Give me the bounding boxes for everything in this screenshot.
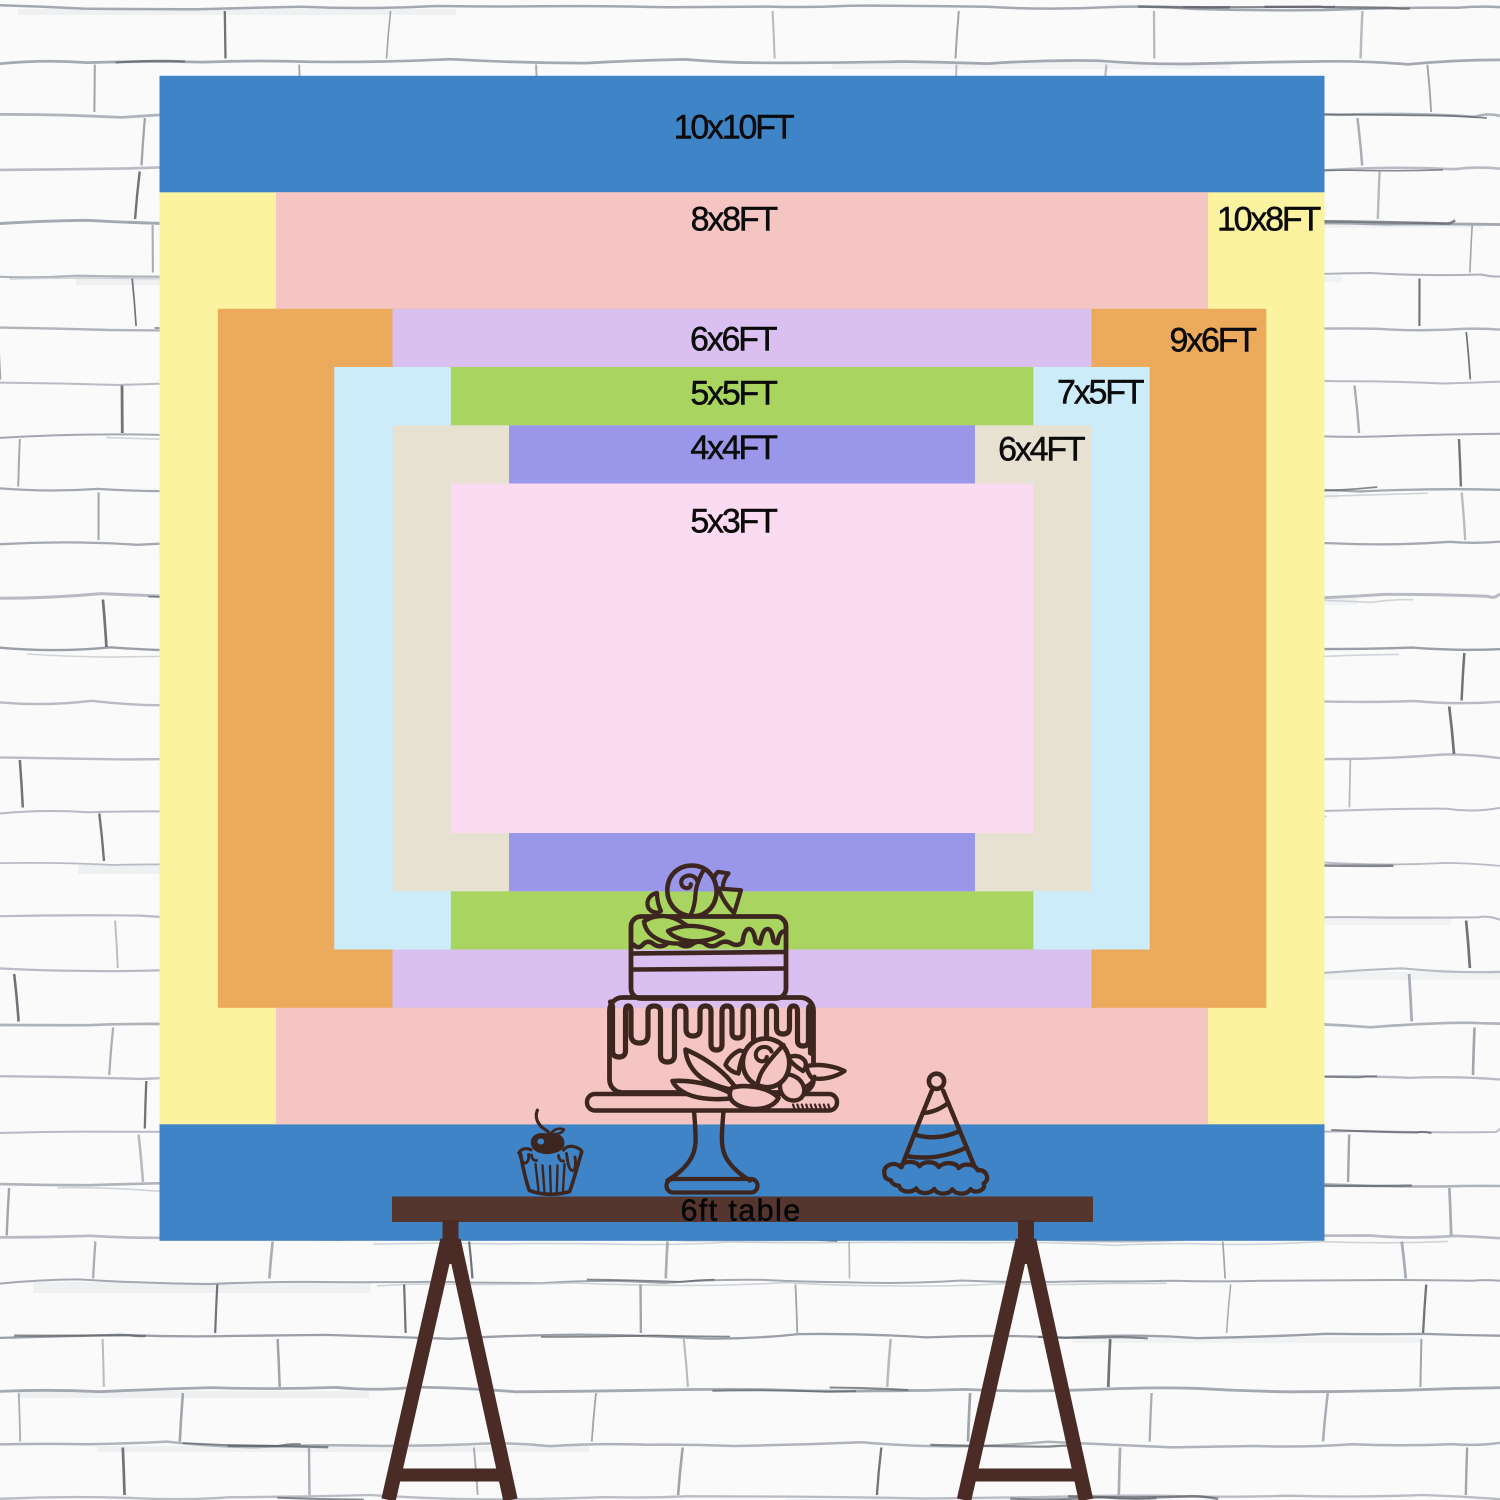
svg-text:7x5FT: 7x5FT bbox=[1057, 374, 1144, 412]
svg-text:10x8FT: 10x8FT bbox=[1217, 200, 1320, 238]
svg-text:6ft table: 6ft table bbox=[680, 1193, 801, 1227]
svg-text:10x10FT: 10x10FT bbox=[674, 108, 794, 146]
svg-text:9x6FT: 9x6FT bbox=[1170, 321, 1257, 359]
svg-text:6x4FT: 6x4FT bbox=[998, 431, 1085, 469]
svg-text:4x4FT: 4x4FT bbox=[690, 429, 777, 467]
svg-text:8x8FT: 8x8FT bbox=[691, 201, 778, 239]
svg-text:5x3FT: 5x3FT bbox=[690, 503, 777, 541]
svg-text:6x6FT: 6x6FT bbox=[690, 320, 777, 358]
svg-text:5x5FT: 5x5FT bbox=[690, 375, 777, 413]
